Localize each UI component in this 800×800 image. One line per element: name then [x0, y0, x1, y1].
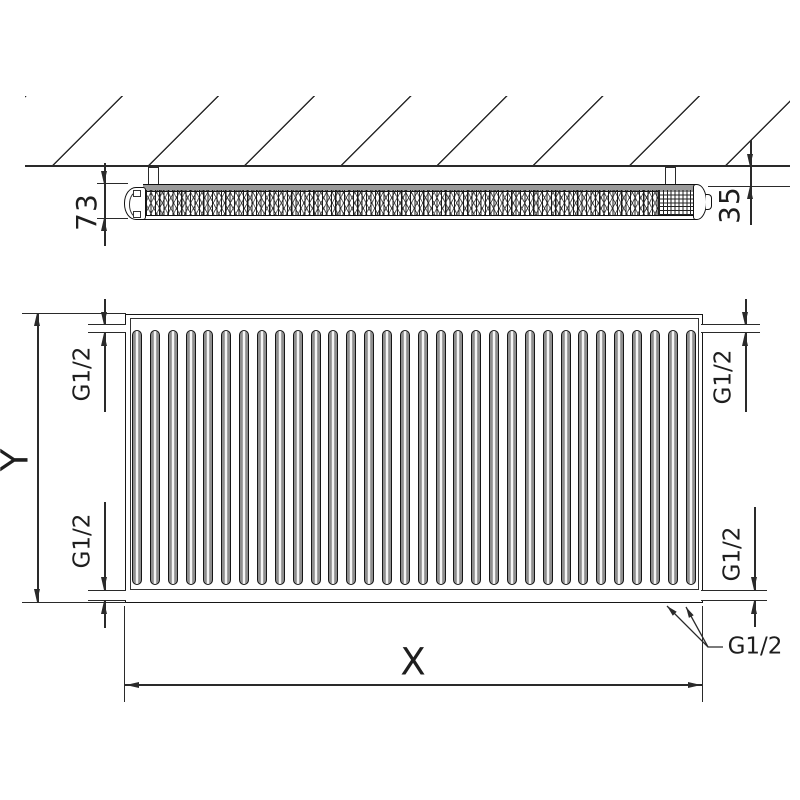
- channel-rib: [489, 330, 499, 585]
- leader-lines: [630, 590, 740, 660]
- arrow-down-icon: [101, 312, 107, 325]
- channel-rib: [543, 330, 553, 585]
- wall-hatching: [25, 96, 790, 166]
- channel-rib: [668, 330, 678, 585]
- channel-rib: [436, 330, 446, 585]
- arrow-down-icon: [101, 577, 107, 590]
- convection-fins: [146, 190, 694, 216]
- arrow-left-icon: [126, 682, 139, 688]
- mounting-bracket-right: [665, 167, 676, 186]
- arrow-up-icon: [751, 601, 757, 614]
- channel-rib: [186, 330, 196, 585]
- arrow-up-icon: [742, 333, 748, 346]
- channel-rib: [221, 330, 231, 585]
- channel-rib: [632, 330, 642, 585]
- valve-section: [658, 190, 696, 215]
- arrow-up-icon: [101, 601, 107, 614]
- channel-rib: [346, 330, 356, 585]
- connection-stub-top-right: [701, 324, 760, 334]
- radiator-technical-drawing: 73 35 Y: [0, 0, 800, 800]
- channels: [132, 330, 696, 585]
- channel-rib: [257, 330, 267, 585]
- channel-rib: [364, 330, 374, 585]
- channel-rib: [239, 330, 249, 585]
- channel-rib: [650, 330, 660, 585]
- arrow-down-icon: [101, 171, 107, 184]
- channel-rib: [578, 330, 588, 585]
- channel-rib: [614, 330, 624, 585]
- conn-bottom-right-label: G1/2: [722, 527, 745, 582]
- end-cap-right: [693, 184, 707, 220]
- channel-rib: [686, 330, 696, 585]
- cap-seam-bottom: [133, 211, 141, 218]
- arrow-up-icon: [101, 333, 107, 346]
- channel-rib: [311, 330, 321, 585]
- conn-bottom-left-label: G1/2: [72, 514, 95, 569]
- arrow-down-icon: [751, 577, 757, 590]
- valve-insert-bump: [706, 194, 712, 210]
- channel-rib: [400, 330, 410, 585]
- channel-rib: [168, 330, 178, 585]
- channel-rib: [471, 330, 481, 585]
- arrow-up-icon: [34, 313, 40, 326]
- depth-dimension-label: 73: [73, 193, 101, 231]
- arrow-up-icon: [747, 186, 753, 199]
- channel-rib: [525, 330, 535, 585]
- channel-rib: [382, 330, 392, 585]
- conn-callout-label: G1/2: [728, 636, 783, 659]
- connection-stub-bottom-left: [88, 590, 126, 601]
- channel-rib: [328, 330, 338, 585]
- arrow-down-icon: [747, 154, 753, 167]
- cap-seam-top: [133, 190, 141, 197]
- channel-rib: [418, 330, 428, 585]
- channel-rib: [561, 330, 571, 585]
- arrow-right-icon: [688, 682, 701, 688]
- arrow-down-icon: [34, 589, 40, 602]
- channel-rib: [453, 330, 463, 585]
- arrow-down-icon: [742, 312, 748, 325]
- channel-rib: [596, 330, 606, 585]
- radiator-front-panel-edge: [143, 215, 696, 220]
- channel-rib: [275, 330, 285, 585]
- conn-top-left-label: G1/2: [72, 347, 95, 402]
- channel-rib: [293, 330, 303, 585]
- height-dimension-label: Y: [0, 449, 34, 472]
- mounting-bracket-left: [148, 167, 159, 186]
- conn-top-right-label: G1/2: [713, 350, 736, 405]
- wall-gap-dimension-label: 35: [716, 186, 744, 224]
- channel-rib: [132, 330, 142, 585]
- channel-rib: [203, 330, 213, 585]
- channel-rib: [150, 330, 160, 585]
- width-dimension-label: X: [400, 644, 425, 681]
- channel-rib: [507, 330, 517, 585]
